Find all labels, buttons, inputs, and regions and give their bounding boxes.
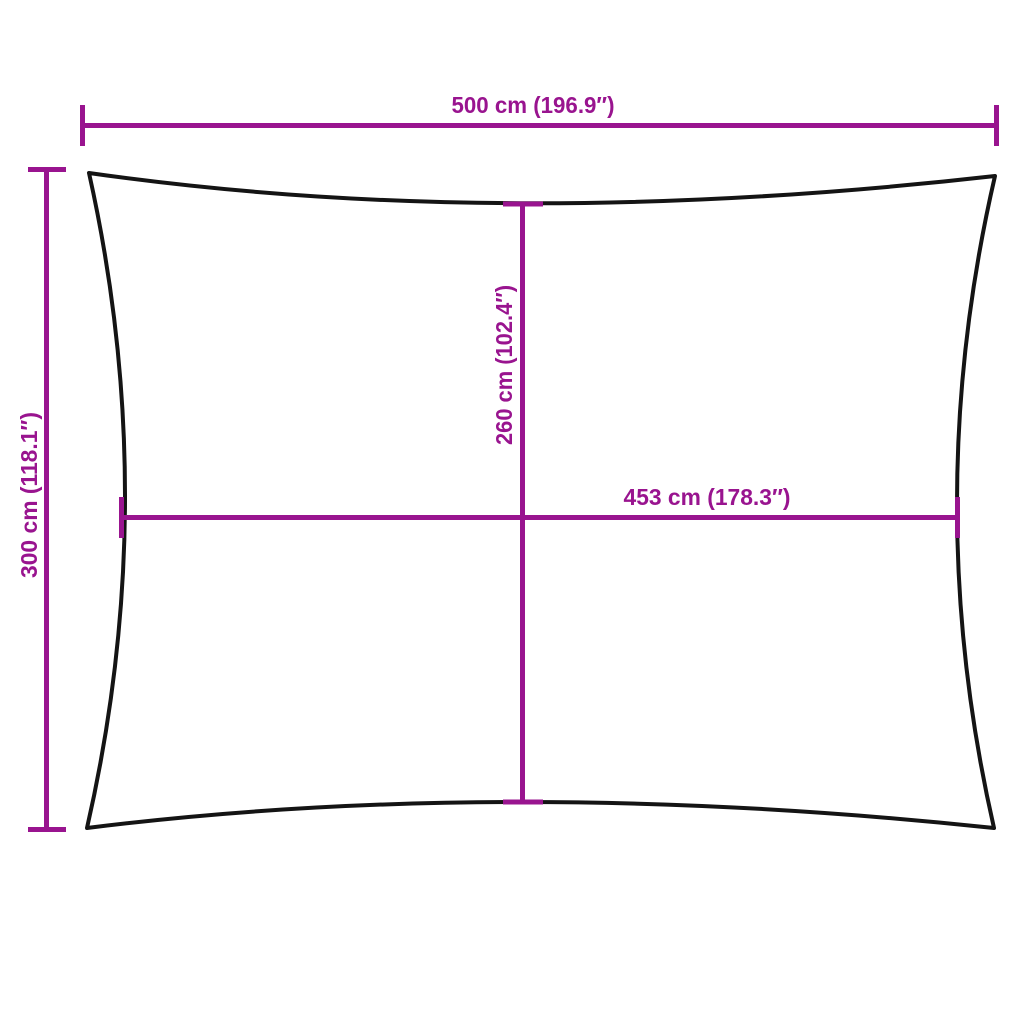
center-width-dimension: 453 cm (178.3″) (121, 484, 958, 538)
top-width-dimension-label: 500 cm (196.9″) (452, 92, 615, 118)
left-height-dimension: 300 cm (118.1″) (16, 169, 66, 830)
dimension-diagram: 500 cm (196.9″) 300 cm (118.1″) 260 cm (… (0, 0, 1024, 1024)
center-height-dimension: 260 cm (102.4″) (491, 204, 543, 802)
center-width-dimension-label: 453 cm (178.3″) (624, 484, 791, 510)
sail-outline (87, 173, 995, 828)
center-height-dimension-label: 260 cm (102.4″) (491, 285, 517, 445)
left-height-dimension-label: 300 cm (118.1″) (16, 412, 42, 578)
top-width-dimension: 500 cm (196.9″) (82, 92, 997, 146)
diagram-canvas: 500 cm (196.9″) 300 cm (118.1″) 260 cm (… (0, 0, 1024, 1024)
